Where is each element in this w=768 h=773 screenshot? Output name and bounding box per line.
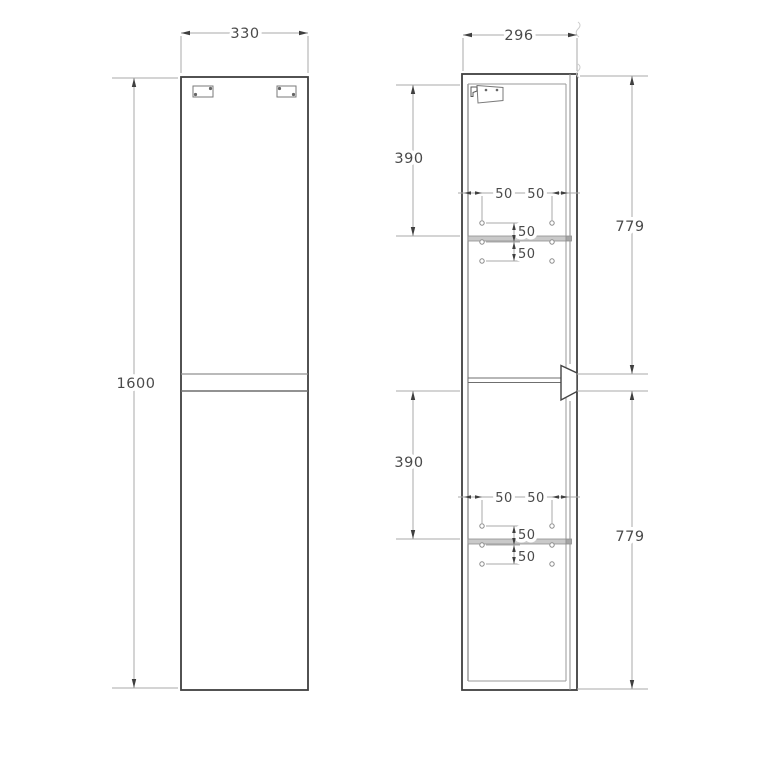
- front-height-label: 1600: [117, 376, 156, 392]
- upper-hole-offset-left-label: 50: [495, 187, 513, 202]
- dim-front-width: 330: [181, 26, 308, 73]
- wall-bracket-left: [193, 86, 213, 97]
- shelf-pin-hole: [480, 543, 484, 547]
- shelf-pin-hole: [550, 221, 554, 225]
- front-view-outline: [181, 77, 308, 690]
- dim-upper-section-height: 779: [577, 76, 648, 374]
- bracket-plate: [477, 86, 503, 104]
- front-width-label: 330: [230, 26, 259, 42]
- lower-hole-offset-right-label: 50: [527, 491, 545, 506]
- dim-lower-section-height: 779: [577, 391, 648, 689]
- shelf-pin-hole: [550, 543, 554, 547]
- shelf-pin-hole: [550, 259, 554, 263]
- shelf-pin-hole: [480, 524, 484, 528]
- side-depth-label: 296: [504, 28, 533, 44]
- lower-hole-offset-left-label: 50: [495, 491, 513, 506]
- shelf-pin-hole: [480, 240, 484, 244]
- lower-hole-pitch-1-label: 50: [518, 528, 536, 543]
- shelf-pin-hole: [480, 259, 484, 263]
- dim-front-height: 1600: [112, 78, 178, 688]
- dim-side-depth: 296: [463, 28, 577, 71]
- lower-shelf-drop-label: 390: [394, 455, 423, 471]
- shelf-pin-hole: [550, 562, 554, 566]
- upper-section-height-label: 779: [615, 219, 644, 235]
- cabinet-technical-drawing: 330 1600 296 390: [0, 0, 768, 768]
- shelf-pin-hole: [550, 524, 554, 528]
- dim-upper-shelf-drop: 390: [394, 85, 460, 236]
- upper-hole-pitch-2-label: 50: [518, 247, 536, 262]
- shelf-pin-hole: [550, 240, 554, 244]
- technical-drawing-page: 330 1600 296 390: [0, 0, 768, 768]
- shelf-pin-hole: [480, 221, 484, 225]
- side-view: [462, 22, 580, 690]
- upper-shelf-drop-label: 390: [394, 151, 423, 167]
- lower-section-height-label: 779: [615, 529, 644, 545]
- upper-hole-offset-right-label: 50: [527, 187, 545, 202]
- wall-bracket-right: [277, 86, 296, 97]
- upper-hole-pitch-1-label: 50: [518, 225, 536, 240]
- lower-hole-pitch-2-label: 50: [518, 550, 536, 565]
- dim-lower-shelf-drop: 390: [394, 391, 460, 539]
- shelf-pin-hole: [480, 562, 484, 566]
- mid-divider: [468, 378, 561, 383]
- front-view: [181, 77, 308, 690]
